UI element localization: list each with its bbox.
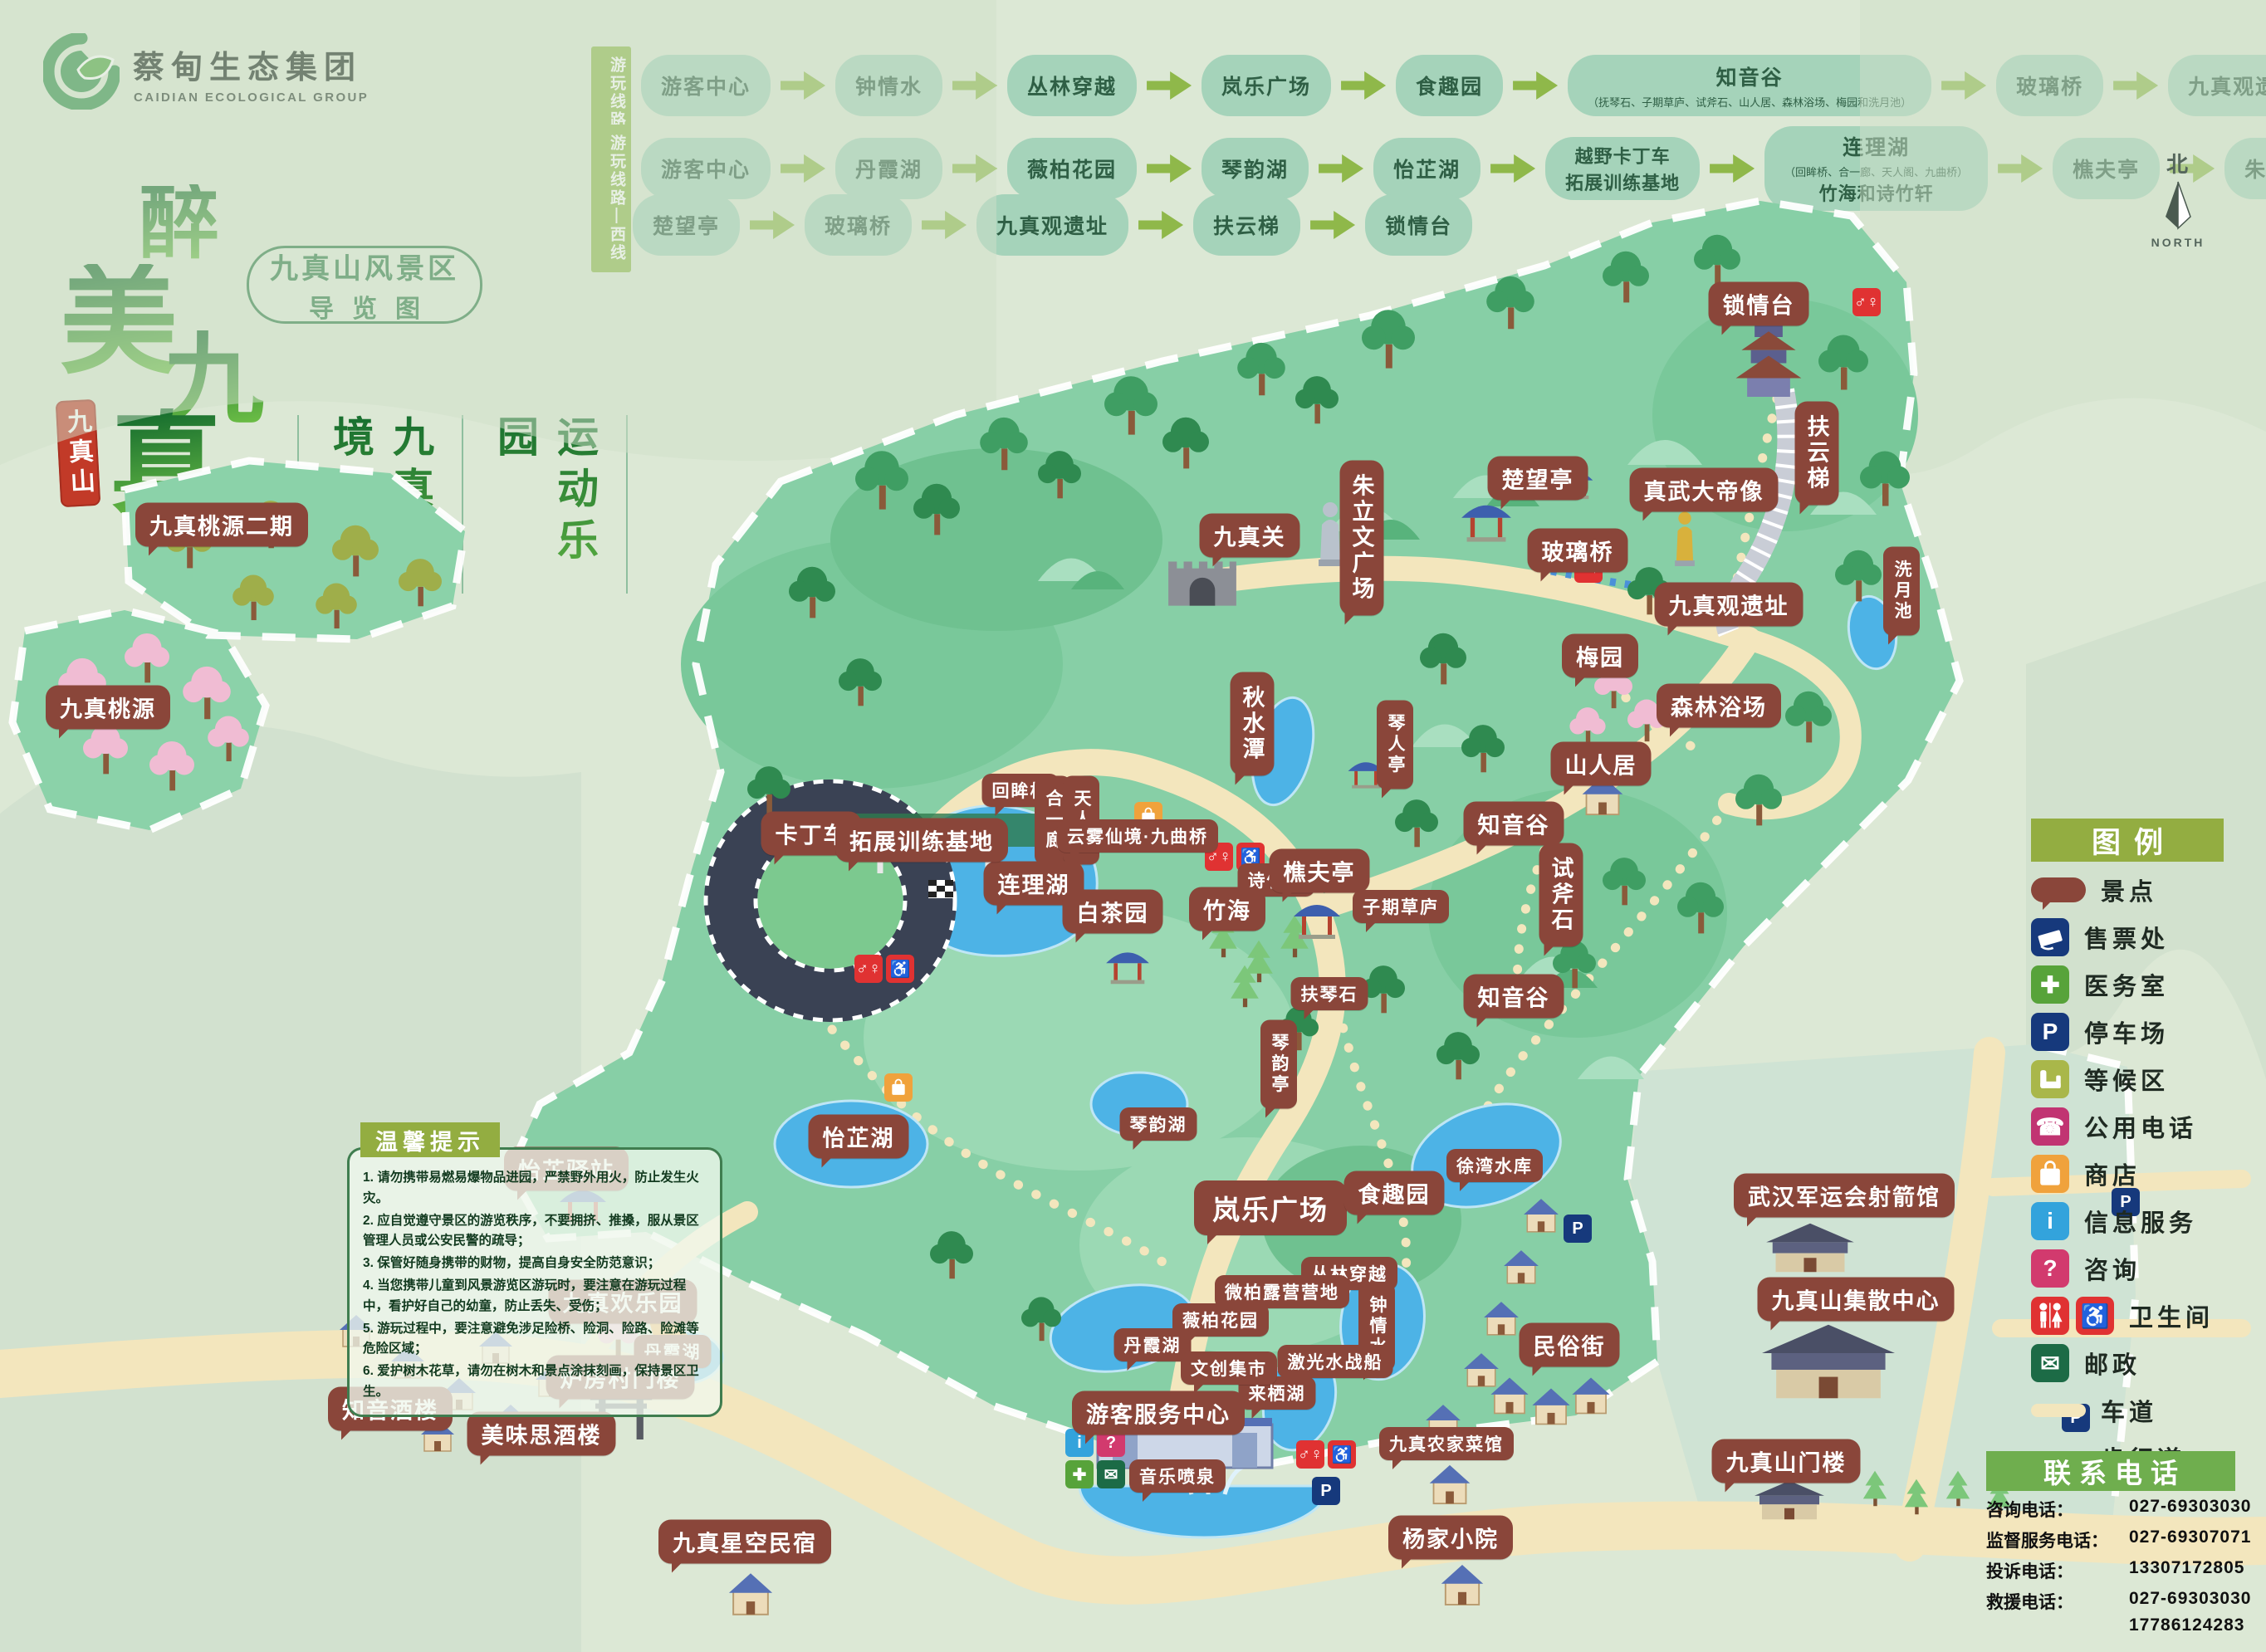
map-label: 白茶园: [1063, 890, 1163, 934]
restroom-icon: ♂♀: [1296, 1440, 1324, 1469]
tip-item: 5. 游玩过程中，要注意避免涉足险桥、险洞、险路、险滩等危险区域；: [363, 1319, 707, 1361]
map-label: 子期草庐: [1353, 890, 1449, 923]
map-label: 山人居: [1551, 742, 1652, 786]
compass: 北 NORTH: [2149, 148, 2207, 249]
post-icon: ✉: [2031, 1344, 2069, 1382]
scenic-map-poster: { "logo": { "title": "蔡甸生态集团", "subtitle…: [0, 0, 2266, 1652]
medical-icon: ✚: [1065, 1460, 1094, 1488]
map-label: 扶云梯: [1795, 402, 1839, 506]
tip-item: 4. 当您携带儿童到风景游览区游玩时，要注意在游玩过程中，看护好自己的幼童，防止…: [363, 1276, 707, 1317]
accessible-icon: ♿: [886, 955, 914, 983]
map-label: 九真观遗址: [1655, 583, 1804, 627]
lane-icon: [2031, 1404, 2086, 1417]
waiting-area-icon: [2031, 1060, 2069, 1098]
restroom-icon: [2031, 1297, 2069, 1335]
shop-icon: [2031, 1155, 2069, 1193]
map-label: 激光水战船: [1278, 1345, 1393, 1378]
restroom-icon: ♂♀: [854, 955, 883, 983]
map-label: 岚乐广场: [1194, 1180, 1347, 1235]
map-label: 徐湾水库: [1446, 1149, 1543, 1182]
map-label: 丹霞湖: [1114, 1328, 1192, 1361]
map-label: 怡芷湖: [809, 1115, 909, 1159]
map-label: 秋水潭: [1231, 672, 1275, 776]
accessible-icon: ♿: [1328, 1440, 1356, 1469]
legend-item: ♿ 卫生间: [2031, 1297, 2260, 1335]
map-label: 试斧石: [1539, 843, 1583, 947]
legend-title: 图例: [2031, 819, 2224, 862]
map-label: 文创集市: [1181, 1351, 1277, 1385]
contact-line: 投诉电话：13307172805: [1986, 1558, 2260, 1583]
phone-icon: ☎: [2031, 1107, 2069, 1146]
contact-panel: 联系电话 咨询电话：027-69303030 监督服务电话：027-693070…: [1986, 1451, 2260, 1635]
legend-item: 商店: [2031, 1155, 2260, 1193]
map-label: 音乐喷泉: [1129, 1459, 1226, 1493]
map-label: 杨家小院: [1388, 1516, 1513, 1560]
tips-panel: 温馨提示 1. 请勿携带易燃易爆物品进园，严禁野外用火，防止发生火灾。 2. 应…: [347, 1122, 722, 1417]
tips-title: 温馨提示: [360, 1122, 500, 1157]
map-label: 琴人亭: [1377, 701, 1413, 789]
tip-item: 2. 应自觉遵守景区的游览秩序，不要拥挤、推搡，服从景区管理人员或公安民警的疏导…: [363, 1211, 707, 1253]
medical-icon: ✚: [2031, 965, 2069, 1004]
map-label: 洗月池: [1883, 547, 1920, 636]
map-label: 真武大帝像: [1630, 468, 1779, 512]
map-label: 食趣园: [1344, 1171, 1445, 1215]
compass-north-char: 北: [2149, 148, 2207, 178]
map-label: 拓展训练基地: [835, 819, 1008, 863]
map-label: 樵夫亭: [1270, 849, 1370, 893]
legend-item: ? 咨询: [2031, 1249, 2260, 1288]
legend-item: ✉ 邮政: [2031, 1344, 2260, 1382]
map-label: 朱立文广场: [1340, 461, 1384, 616]
map-label: 民俗街: [1520, 1323, 1620, 1367]
map-label: 九真山集散中心: [1758, 1278, 1955, 1322]
map-label: 玻璃桥: [1528, 529, 1628, 573]
question-icon: ?: [2031, 1249, 2069, 1288]
tip-item: 1. 请勿携带易燃易爆物品进园，严禁野外用火，防止发生火灾。: [363, 1168, 707, 1210]
tip-item: 6. 爱护树木花草，请勿在树木和景点涂抹刻画，保持景区卫生。: [363, 1361, 707, 1403]
map-label: 知音谷: [1464, 802, 1564, 846]
legend-item: 等候区: [2031, 1060, 2260, 1098]
restroom-icon: ♂♀: [1852, 288, 1881, 316]
map-label: 九真农家菜馆: [1379, 1427, 1514, 1460]
map-label: 琴韵亭: [1260, 1020, 1297, 1109]
map-label: 锁情台: [1709, 282, 1809, 326]
compass-north-label: NORTH: [2149, 236, 2207, 249]
map-label: 森林浴场: [1657, 684, 1781, 728]
contact-line: 救援电话：027-69303030: [1986, 1589, 2260, 1614]
contact-line: 监督服务电话：027-69307071: [1986, 1527, 2260, 1552]
map-label: 梅园: [1562, 634, 1638, 678]
tip-item: 3. 保管好随身携带的财物，提高自身安全防范意识；: [363, 1254, 707, 1274]
map-label: 楚望亭: [1488, 457, 1588, 501]
shop-icon: [884, 1073, 913, 1102]
map-label: 知音谷: [1464, 975, 1564, 1019]
map-label: 云雾仙境·九曲桥: [1057, 819, 1218, 853]
legend-item: 车道: [2031, 1391, 2260, 1430]
post-icon: ✉: [1097, 1460, 1125, 1488]
contact-title: 联系电话: [1986, 1451, 2235, 1491]
compass-needle-icon: [2159, 180, 2197, 230]
contact-line: 咨询电话：027-69303030: [1986, 1497, 2260, 1522]
map-label: 琴韵湖: [1120, 1107, 1197, 1141]
map-label: 九真关: [1200, 514, 1300, 558]
parking-icon: P: [2031, 1013, 2069, 1051]
map-label: 扶琴石: [1291, 977, 1368, 1010]
poi-bubble-icon: [2031, 877, 2086, 902]
map-label: 美味思酒楼: [467, 1412, 616, 1456]
legend-item: ☎ 公用电话: [2031, 1107, 2260, 1146]
map-label: 九真桃源: [46, 686, 170, 730]
info-icon: i: [2031, 1202, 2069, 1240]
legend-item: P 停车场: [2031, 1013, 2260, 1051]
legend-item: 售票处: [2031, 918, 2260, 956]
map-label: 武汉军运会射箭馆: [1734, 1174, 1955, 1218]
parking-icon: P: [1312, 1477, 1340, 1505]
map-label: 竹海: [1189, 887, 1265, 931]
map-label: 九真星空民宿: [658, 1520, 831, 1564]
tips-body: 1. 请勿携带易燃易爆物品进园，严禁野外用火，防止发生火灾。 2. 应自觉遵守景…: [347, 1147, 722, 1417]
legend-item: 景点: [2031, 871, 2260, 909]
accessible-icon: ♿: [2076, 1297, 2114, 1335]
legend-item: ✚ 医务室: [2031, 965, 2260, 1004]
parking-icon: P: [1564, 1215, 1592, 1243]
map-label: 九真桃源二期: [135, 503, 308, 547]
legend-panel: 图例 景点 售票处 ✚ 医务室 P 停车场 等候区 ☎ 公用电话 商店 i 信息…: [2031, 819, 2260, 1477]
legend-item: i 信息服务: [2031, 1202, 2260, 1240]
contact-extra: 17786124283: [2129, 1615, 2260, 1635]
map-label: 游客服务中心: [1072, 1391, 1245, 1435]
map-label: 九真山门楼: [1712, 1439, 1861, 1483]
ticket-icon: [2031, 918, 2069, 956]
